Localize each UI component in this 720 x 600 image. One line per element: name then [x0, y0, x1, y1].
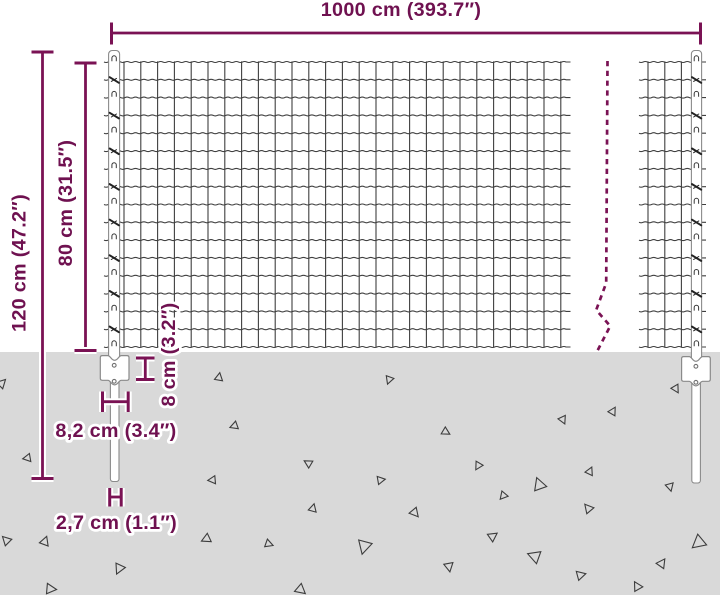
svg-text:1000 cm (393.7″): 1000 cm (393.7″): [321, 0, 482, 21]
svg-text:120 cm (47.2″): 120 cm (47.2″): [9, 194, 31, 332]
svg-text:80 cm (31.5″): 80 cm (31.5″): [55, 140, 77, 267]
svg-text:2,7 cm (1.1″): 2,7 cm (1.1″): [56, 512, 177, 534]
svg-text:8 cm (3.2″): 8 cm (3.2″): [158, 302, 180, 406]
svg-text:8,2 cm (3.4″): 8,2 cm (3.4″): [55, 420, 176, 442]
